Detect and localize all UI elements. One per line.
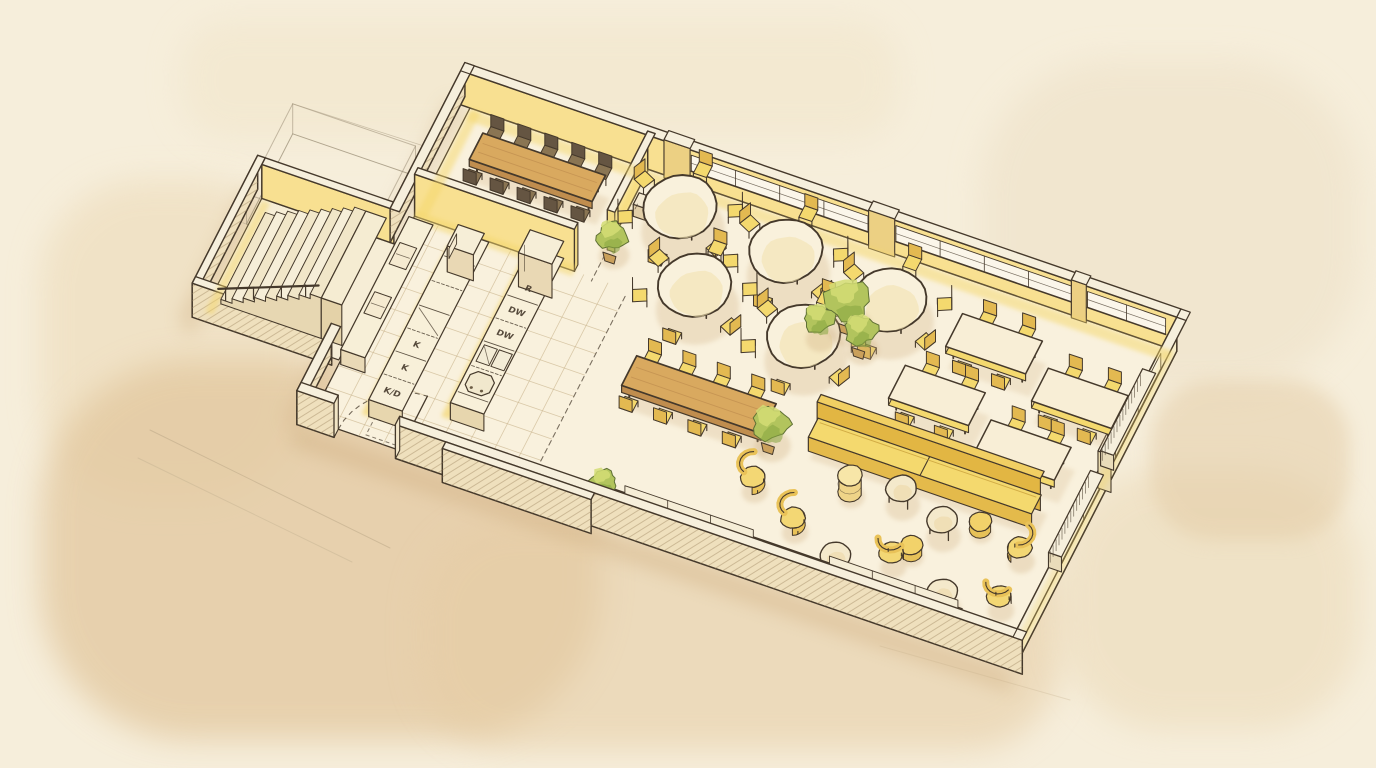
illustration-canvas: Hand-drawn isometric floor plan sketch o… (0, 0, 1376, 768)
pouf (969, 512, 993, 543)
coffee-table (886, 475, 921, 521)
cylinder-pouf (838, 465, 865, 508)
floor-plan-illustration: Hand-drawn isometric floor plan sketch o… (0, 0, 1376, 768)
stove-icon (465, 372, 494, 396)
coffee-table (926, 506, 961, 552)
